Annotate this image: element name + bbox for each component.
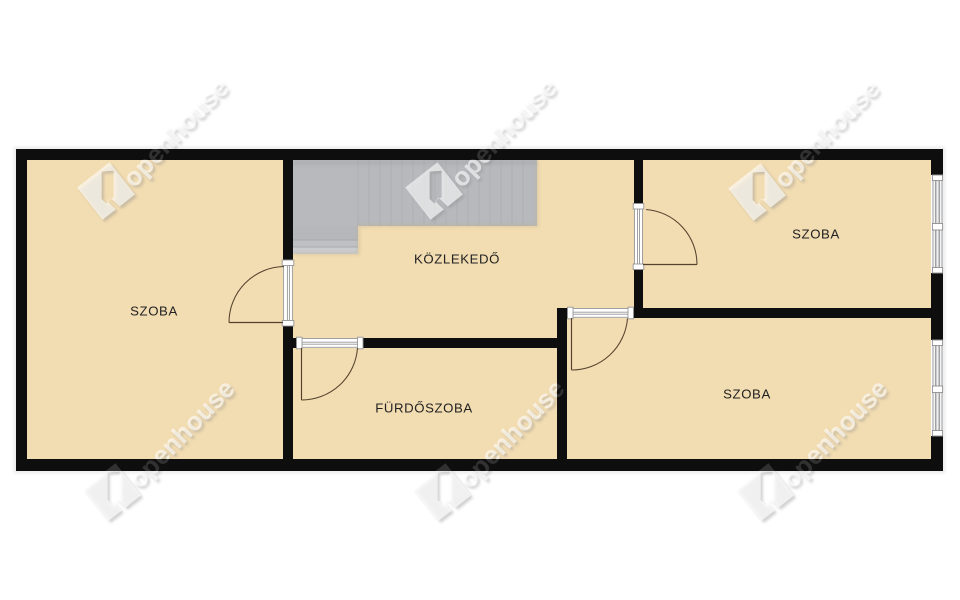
svg-text:SZOBA: SZOBA xyxy=(130,304,178,319)
svg-text:SZOBA: SZOBA xyxy=(723,387,771,402)
svg-text:KÖZLEKEDŐ: KÖZLEKEDŐ xyxy=(414,252,500,267)
svg-text:SZOBA: SZOBA xyxy=(792,227,840,242)
svg-text:FÜRDŐSZOBA: FÜRDŐSZOBA xyxy=(375,401,473,416)
